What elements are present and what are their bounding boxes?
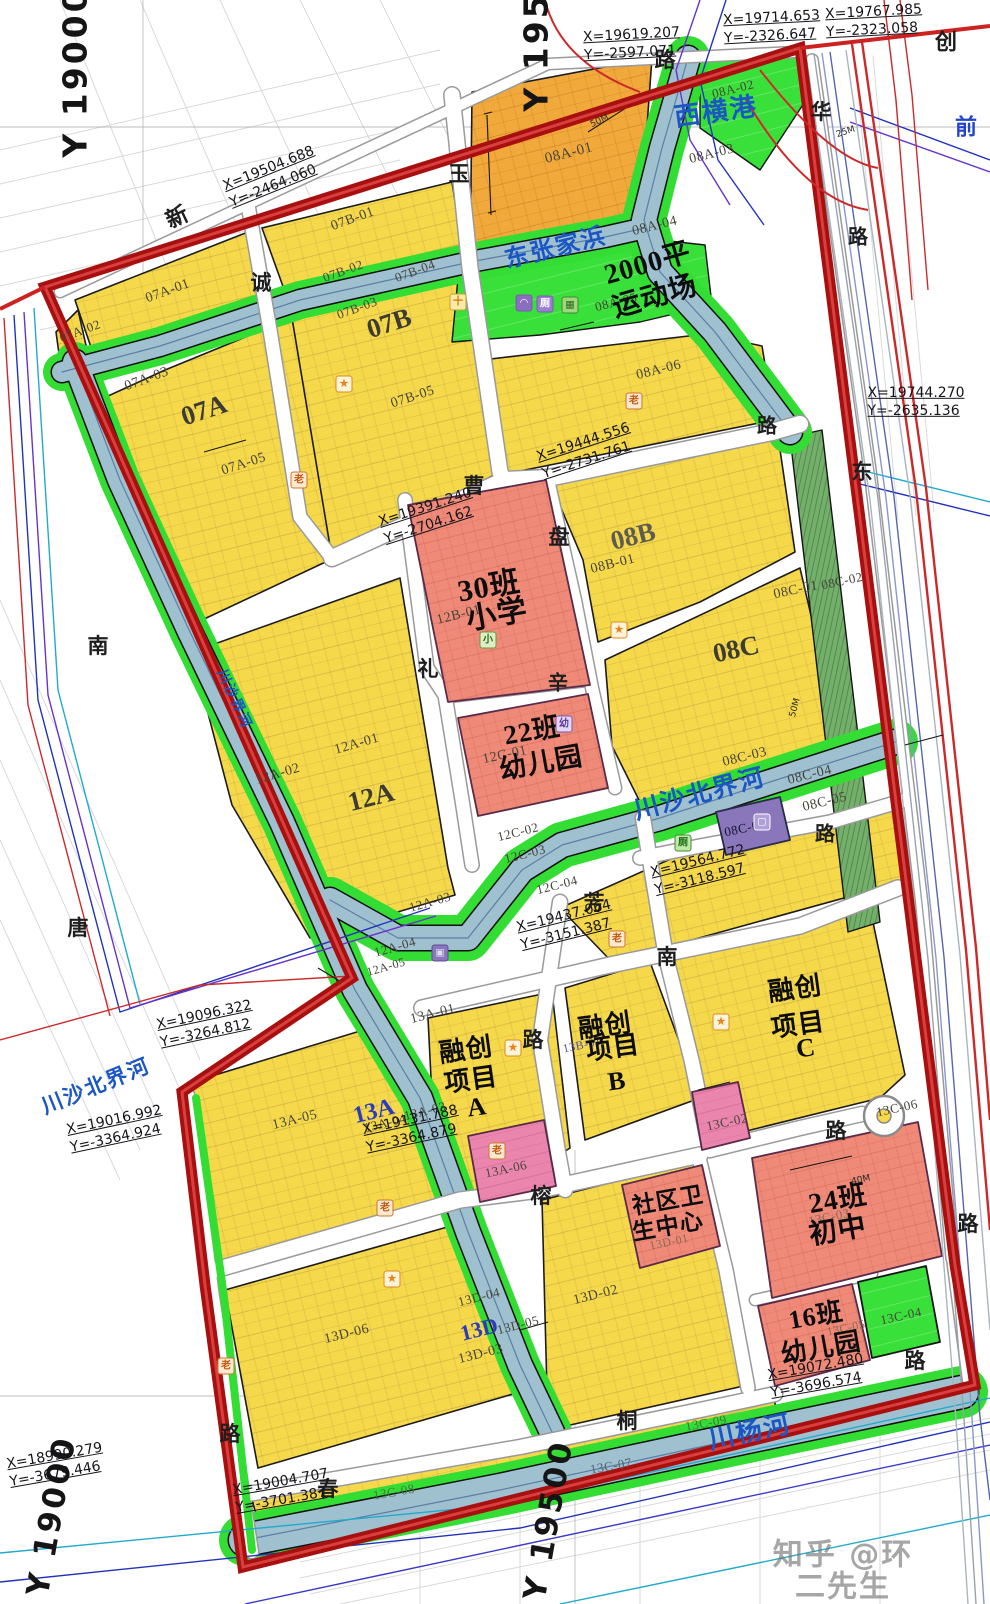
parcel-label-13A-06: 13A-06: [484, 1158, 529, 1180]
parcel-label-07A-05: 07A-05: [220, 451, 268, 479]
road-label-华: 华: [811, 101, 832, 123]
grid-label-Y-19500: Y 19500: [519, 1437, 579, 1602]
road-label-东: 东: [852, 461, 873, 483]
facility-label-2000平: 2000平: [601, 238, 695, 291]
parcel-label-13D-04: 13D-04: [457, 1285, 502, 1309]
parcel-label-13C-07: 13C-07: [589, 1456, 633, 1477]
lao-icon: 老: [626, 393, 643, 410]
road-label-南: 南: [88, 635, 109, 657]
river-label-川沙北界河: 川沙北界河: [631, 765, 768, 825]
zone-label-13A: 13A: [351, 1095, 397, 1129]
road-label-榕: 榕: [531, 1185, 552, 1207]
zone-label-08B: 08B: [608, 517, 659, 555]
road-label-南: 南: [657, 946, 678, 968]
parcel-label-08B-01: 08B-01: [589, 552, 636, 577]
parcel-label-12A-02: 12A-02: [254, 762, 302, 789]
road-label-路: 路: [905, 1350, 926, 1372]
parcel-label-12A-05: 12A-05: [365, 955, 407, 978]
facility-label-生中心: 生中心: [630, 1209, 705, 1245]
coordinate-label-X=19096.322-Y=-3264.812: X=19096.322 Y=-3264.812: [155, 996, 257, 1052]
parcel-label-12C-01: 12C-01: [481, 744, 528, 768]
grid-label-Y-19000: Y 19000: [22, 1433, 82, 1598]
facility-label-初中: 初中: [807, 1211, 869, 1250]
road-label-路: 路: [523, 1029, 544, 1051]
zone-label-07A: 07A: [178, 389, 231, 430]
parcel-label-08A-03: 08A-03: [688, 142, 736, 167]
pbox-icon: ▢: [754, 814, 771, 831]
coordinate-label-X=19504.688-Y=-2464.060: X=19504.688 Y=-2464.060: [220, 142, 324, 212]
coordinate-label-X=18990.279-Y=-3679.446: X=18990.279 Y=-3679.446: [5, 1439, 107, 1492]
star-icon: ★: [505, 1040, 522, 1057]
dimension-label-50M: 50M: [789, 697, 803, 718]
road-label-芳: 芳: [584, 892, 605, 914]
parcel-label-13D-01: 13D-01: [648, 1232, 689, 1253]
zone-label-12A: 12A: [345, 778, 397, 817]
river-label-川杨河: 川杨河: [706, 1410, 794, 1454]
road-label-诚: 诚: [251, 272, 272, 294]
parcel-label-07A-01: 07A-01: [144, 277, 192, 306]
parcel-label-12A-03: 12A-03: [408, 890, 453, 915]
road-label-路: 路: [848, 228, 868, 249]
road-label-路: 路: [815, 825, 835, 846]
parcel-label-13C-06: 13C-06: [875, 1097, 919, 1119]
facility-label-幼儿园: 幼儿园: [497, 742, 585, 784]
facility-label-小学: 小学: [464, 594, 531, 636]
watermark-知乎-@环二先生: 知乎 @环二先生: [770, 1540, 917, 1603]
parcel-label-13A-05: 13A-05: [271, 1108, 319, 1133]
road-label-曹: 曹: [464, 475, 485, 497]
zone-label-07B: 07B: [363, 303, 415, 344]
parcel-label-08C-06: 08C-06: [723, 817, 767, 839]
star-icon: ★: [611, 622, 628, 639]
facility-label-社区卫: 社区卫: [630, 1183, 705, 1219]
facility-label-融创: 融创: [576, 1009, 633, 1044]
road-label-前: 前: [955, 115, 977, 138]
parcel-label-08A-04: 08A-04: [631, 214, 679, 239]
road-label-桐: 桐: [617, 1410, 638, 1432]
lao-icon: 老: [489, 1143, 506, 1160]
parcel-label-13C-03: 13C-03: [807, 1206, 851, 1228]
coordinate-label-X=19444.556-Y=-2731.761: X=19444.556 Y=-2731.761: [534, 419, 638, 484]
road-label-路: 路: [826, 1120, 847, 1142]
river-label-川沙北界河: 川沙北界河: [39, 1054, 154, 1118]
parcel-label-08A-06: 08A-06: [635, 358, 683, 383]
you-icon: 幼: [556, 716, 573, 733]
road-label-盘: 盘: [549, 526, 570, 548]
greenbox-icon: ▦: [562, 297, 579, 314]
coordinate-label-X=19131.788-Y=-3364.879: X=19131.788 Y=-3364.879: [361, 1101, 463, 1157]
parcel-label-08C-03: 08C-03: [721, 745, 768, 770]
parcel-label-13D-06: 13D-06: [323, 1322, 371, 1347]
parcel-label-12A-04: 12A-04: [373, 935, 418, 960]
facility-label-C: C: [794, 1033, 817, 1063]
facility-label-22班: 22班: [501, 712, 562, 750]
coordinate-label-X=19744.270-Y=-2635.136: X=19744.270 Y=-2635.136: [867, 384, 964, 420]
dimension-label-50M: 50M: [589, 114, 610, 131]
lao-icon: 老: [218, 1358, 235, 1375]
road-label-路: 路: [220, 1423, 241, 1445]
parcel-label-07B-05: 07B-05: [389, 384, 436, 412]
facility-label-项目: 项目: [442, 1063, 499, 1098]
road-label-路: 路: [757, 417, 777, 438]
grid-label-Y-19000: Y 19000: [59, 0, 94, 158]
ce-green-icon: 厕: [675, 835, 692, 852]
parcel-label-13C-02: 13C-02: [705, 1111, 749, 1133]
zone-label-08C: 08C: [710, 630, 761, 667]
parcel-label-13D-03: 13D-03: [457, 1342, 505, 1367]
parcel-label-13C-05: 13C-05: [826, 1318, 867, 1338]
facility-label-A: A: [465, 1092, 488, 1122]
river-label-东张家浜: 东张家浜: [502, 224, 609, 274]
parcel-label-08A-02: 08A-02: [711, 77, 756, 101]
parcel-label-13B-01: 13B-01: [562, 1035, 603, 1055]
parcel-label-12C-04: 12C-04: [535, 873, 579, 896]
parcel-label-13A-03: 13A-03: [403, 1099, 448, 1123]
facility-label-16班: 16班: [787, 1298, 846, 1334]
road-label-唐: 唐: [68, 917, 89, 939]
coordinate-label-X=19391.240-Y=-2704.162: X=19391.240 Y=-2704.162: [376, 484, 480, 549]
lao-icon: 老: [609, 931, 626, 948]
facility-label-运动场: 运动场: [609, 271, 701, 323]
facility-label-融创: 融创: [437, 1033, 494, 1068]
parcel-label-13D-05: 13D-05: [496, 1313, 541, 1337]
facility-label-B: B: [606, 1066, 628, 1096]
facility-label-融创: 融创: [766, 972, 823, 1007]
parcel-label-13C-08: 13C-08: [372, 1482, 416, 1503]
road-label-路: 路: [958, 1213, 979, 1235]
parcel-label-12C-02: 12C-02: [496, 820, 540, 843]
parcel-label-07B-01: 07B-01: [329, 205, 376, 234]
road-label-玉: 玉: [449, 163, 470, 185]
facility-label-幼儿园: 幼儿园: [779, 1328, 864, 1369]
dimension-label-40M: 40M: [851, 1174, 872, 1187]
coordinate-label-X=19072.480-Y=-3696.574: X=19072.480 Y=-3696.574: [766, 1350, 868, 1403]
coordinate-label-X=19714.653-Y=-2326.647: X=19714.653 Y=-2326.647: [723, 6, 822, 47]
dome-icon: ◠: [516, 295, 533, 312]
parcel-label-07A-02: 07A-02: [58, 317, 103, 344]
road-label-创: 创: [935, 30, 957, 53]
parcel-label-07A-03: 07A-03: [123, 365, 171, 394]
lao-icon: 老: [291, 472, 308, 489]
coordinate-label-X=19016.992-Y=-3364.924: X=19016.992 Y=-3364.924: [65, 1101, 167, 1157]
grid-label-Y-19500: Y 19500: [520, 0, 555, 112]
parcel-label-08A-05: 08A-05: [594, 290, 639, 314]
parcel-label-08C-01: 08C-01: [772, 579, 819, 603]
ce-icon: 厕: [537, 296, 554, 313]
pbox2-icon: ▣: [432, 945, 449, 962]
coordinate-label-X=19767.985-Y=-2323.058: X=19767.985 Y=-2323.058: [825, 0, 924, 41]
facility-label-30班: 30班: [455, 566, 523, 608]
parcel-label-13D-02: 13D-02: [572, 1283, 620, 1308]
star-icon: ★: [384, 1271, 401, 1288]
river-label-川沙界河: 川沙界河: [213, 668, 253, 732]
parcel-label-07B-04: 07B-04: [393, 257, 437, 284]
dimension-label-25M: 25M: [835, 126, 856, 141]
facility-label-项目: 项目: [584, 1031, 641, 1066]
coordinate-label-X=19564.772-Y=-3118.597: X=19564.772 Y=-3118.597: [649, 841, 752, 900]
lao-icon: 老: [377, 1200, 394, 1217]
facility-label-24班: 24班: [806, 1180, 869, 1219]
parcel-label-13A-04: 13A-04: [363, 1111, 408, 1135]
road-label-路: 路: [655, 49, 676, 71]
parcel-label-12A-01: 12A-01: [333, 732, 381, 759]
parcel-label-08C-02: 08C-02: [820, 570, 864, 592]
road-label-春: 春: [318, 1478, 339, 1500]
road-label-辛: 辛: [548, 674, 568, 695]
road-label-新: 新: [162, 202, 192, 232]
parcel-label-07B-02: 07B-02: [321, 257, 365, 284]
parcel-label-12C-03: 12C-03: [503, 842, 547, 865]
parcel-label-08A-01: 08A-01: [543, 140, 594, 167]
cross-icon: 十: [450, 294, 467, 311]
parcel-label-07B-03: 07B-03: [335, 294, 379, 321]
zone-label-13D: 13D: [458, 1313, 500, 1345]
parcel-label-13C-09: 13C-09: [684, 1413, 728, 1434]
coordinate-label-X=19437.064-Y=-3151.387: X=19437.064 Y=-3151.387: [515, 896, 618, 955]
parcel-label-08C-04: 08C-04: [786, 763, 833, 788]
facility-label-项目: 项目: [769, 1008, 826, 1043]
parcel-label-13A-01: 13A-01: [409, 1002, 457, 1027]
labels-layer: Y 19000Y 19500Y 19500Y 19000新路创华玉诚曹盘礼辛芳南…: [0, 0, 990, 1604]
parcel-label-12B-01: 12B-01: [435, 603, 482, 628]
coordinate-label-X=19619.207-Y=-2597.071: X=19619.207 Y=-2597.071: [583, 23, 682, 64]
parcel-label-08C-05: 08C-05: [801, 790, 848, 815]
star-icon: ★: [713, 1014, 730, 1031]
road-label-礼: 礼: [418, 658, 439, 680]
xiao-icon: 小: [480, 632, 497, 649]
parcel-label-13C-04: 13C-04: [879, 1305, 923, 1327]
planning-map: Y 19000Y 19500Y 19500Y 19000新路创华玉诚曹盘礼辛芳南…: [0, 0, 990, 1604]
river-label-西横港: 西横港: [673, 93, 760, 132]
coordinate-label-X=19004.707-Y=-3701.387: X=19004.707 Y=-3701.387: [231, 1465, 333, 1518]
star-icon: ★: [336, 376, 353, 393]
